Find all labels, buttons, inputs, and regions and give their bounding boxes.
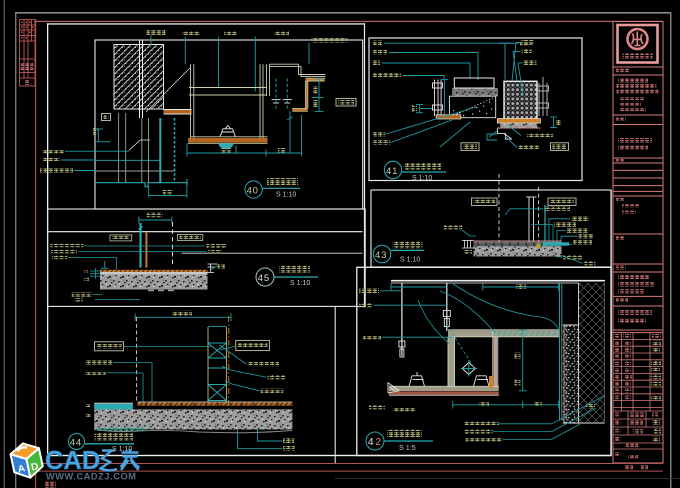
svg-text:WWW.CADZJ.COM: WWW.CADZJ.COM: [46, 472, 136, 482]
svg-text:2: 2: [376, 437, 382, 448]
svg-text:S 1:10: S 1:10: [412, 175, 432, 182]
svg-text:S 1:10: S 1:10: [400, 257, 420, 264]
svg-text:45: 45: [258, 273, 270, 284]
svg-text:S 1:5: S 1:5: [399, 443, 416, 452]
svg-text:41: 41: [386, 166, 398, 177]
svg-text:S 1:10: S 1:10: [276, 192, 296, 199]
svg-text:4: 4: [368, 437, 374, 448]
svg-text:43: 43: [375, 250, 387, 261]
svg-text:S 1:10: S 1:10: [290, 280, 310, 287]
svg-text:40: 40: [247, 185, 259, 196]
